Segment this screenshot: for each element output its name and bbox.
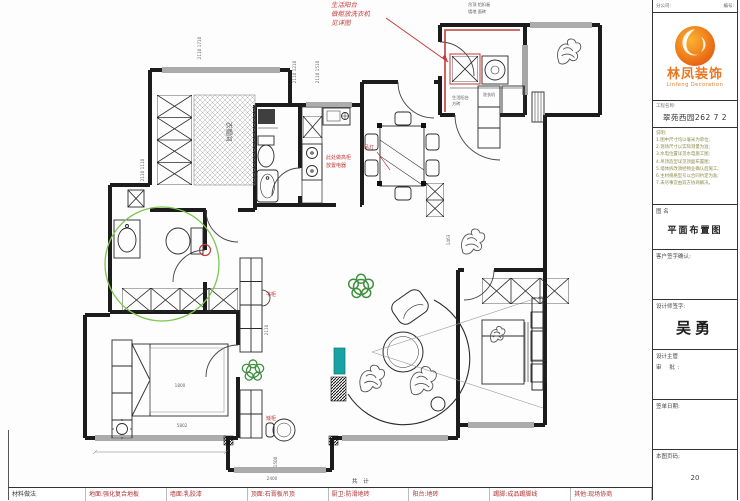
title-block-header: 分公司: 编号:: [653, 0, 737, 13]
dim-c: 2110 1510: [315, 60, 320, 83]
materials-legend-strip: 材料做法 地面:强化复合地板 墙面:乳胶漆 顶面:石膏板吊顶 厨卫:防滑地砖 阳…: [8, 487, 652, 500]
hand-note-line2: 做柜放洗衣机: [331, 10, 371, 18]
sign-date-field: 签单日期:: [653, 400, 737, 450]
project-name-field: 工程名称: 翠苑西园262 7 2: [653, 101, 737, 128]
note-line: 1.图中尺寸均以毫米为单位;: [656, 137, 734, 144]
legend-item: 厨卫:防滑地砖: [329, 488, 410, 501]
page-number-value: 20: [656, 474, 734, 482]
legend-item: 阳台:地砖: [409, 488, 490, 501]
designer-signature-field: 设计师签字: 吴勇: [653, 300, 737, 350]
decor-sketch-1: [360, 365, 385, 392]
decor-sketch-2: [410, 366, 436, 394]
floor-plan: 衣帽间: [0, 0, 652, 500]
note-line: 3.水电位置详见水电施工图;: [656, 151, 734, 158]
note-line: 7.未尽事宜由双方协商解决。: [656, 180, 734, 187]
legend-item: 其他:现场协商: [571, 488, 652, 501]
top-note-2: 墙地 面砖: [468, 8, 486, 15]
drawing-name-field: 图 名 平面布置图: [653, 205, 737, 250]
company-logo-icon: [674, 25, 716, 67]
laundry-label-2: 方砖: [452, 100, 460, 107]
dining-note-leader: [377, 152, 390, 170]
note-line: 说明:: [656, 130, 734, 137]
dim-b: 2110 1210: [292, 60, 297, 83]
room-bedroom-2: [482, 278, 569, 384]
laundry-label-1: 生活阳台: [452, 94, 469, 101]
note-line: 2.现场尺寸以实际测量为准;: [656, 144, 734, 151]
dim-g: 5802: [177, 423, 188, 428]
dim-e: 2110: [264, 324, 269, 335]
room-laundry: [450, 56, 522, 88]
door-arcs: [173, 42, 500, 377]
dim-a: 2110 1710: [197, 36, 202, 59]
dim-d: 1463: [446, 234, 451, 245]
title-block: 分公司: 编号: 林凤装饰 Linfeng Decoration 工程名称: 翠…: [652, 0, 738, 500]
sign-date-label: 签单日期:: [656, 402, 734, 410]
room-study: [240, 258, 295, 441]
plant-sketch-dining: [462, 229, 485, 254]
kitchen-note-2: 放置电器: [326, 162, 346, 169]
washer-label: 洗衣机: [483, 91, 495, 97]
company-name-cn: 林凤装饰: [667, 68, 723, 82]
handwritten-note: 生活阳台 做柜放洗衣机 见详图: [331, 1, 371, 27]
dim-j: 2110 1110: [140, 158, 145, 181]
room-bathroom-2: [257, 109, 278, 202]
legend-item: 顶面:石膏板吊顶: [248, 488, 329, 501]
bed-pillow-sketch: [490, 326, 505, 342]
study-note-2: 矮柜: [266, 415, 276, 422]
number-label: 编号:: [723, 3, 734, 9]
room-cloakroom: [128, 95, 255, 207]
branch-label: 分公司:: [656, 3, 671, 9]
legend-total-label: 共 计: [352, 477, 371, 485]
hand-note-line1: 生活阳台: [331, 1, 358, 9]
cloakroom-label: 衣帽间: [225, 122, 234, 142]
designer-signature-label: 设计师签字:: [656, 302, 734, 310]
designer-signature-value: 吴勇: [656, 317, 734, 338]
project-name-label: 工程名称:: [656, 103, 734, 109]
plant-sketch-right: [558, 39, 581, 64]
page-number-label: 本图页码:: [656, 452, 734, 460]
green-revision-circle: [105, 207, 219, 321]
structural-columns: [224, 377, 346, 445]
legend-item: 材料做法: [9, 488, 86, 501]
note-line: 5.墙体拆改须经物业确认后施工;: [656, 166, 734, 173]
study-note-1: 书柜: [266, 291, 276, 298]
company-name-en: Linfeng Decoration: [667, 82, 724, 88]
dim-f: 1800: [175, 383, 186, 388]
customer-signature-label: 客户签字确认:: [656, 252, 734, 260]
legend-item: 地面:强化复合地板: [86, 488, 167, 501]
plant-study: [242, 360, 263, 380]
drawing-name-value: 平面布置图: [656, 223, 734, 236]
aquarium-teal: [334, 348, 345, 374]
drawing-name-label: 图 名: [656, 207, 734, 215]
supervisor-field: 设计主管 审 批:: [653, 350, 737, 400]
dim-h: 2400: [267, 476, 278, 481]
kitchen-note-1: 此处做高柜: [326, 154, 351, 161]
legend-item: 墙面:乳胶漆: [167, 488, 248, 501]
audit-label: 审 批:: [656, 363, 734, 371]
dim-i: 1500: [273, 456, 278, 467]
note-line: 6.主材规格型号以合同约定为准;: [656, 173, 734, 180]
project-name-value: 翠苑西园262 7 2: [656, 112, 734, 123]
customer-signature-field: 客户签字确认:: [653, 250, 737, 300]
hand-note-line3: 见详图: [331, 19, 352, 27]
legend-item: 踢脚:成品踢脚线: [490, 488, 571, 501]
note-line: 4.吊顶造型详见顶面布置图;: [656, 159, 734, 166]
dining-note: 吊灯: [364, 144, 374, 151]
company-logo-box: 林凤装饰 Linfeng Decoration: [653, 13, 737, 101]
windows: [95, 23, 592, 473]
room-living: [348, 287, 543, 425]
notes-field: 说明: 1.图中尺寸均以毫米为单位; 2.现场尺寸以实际测量为准; 3.水电位置…: [653, 128, 737, 205]
supervisor-label: 设计主管: [656, 352, 734, 360]
plant-living: [349, 274, 374, 297]
page-number-field: 本图页码: 20: [653, 450, 737, 500]
top-note-1: 吊顶 铝扣板: [468, 1, 491, 8]
